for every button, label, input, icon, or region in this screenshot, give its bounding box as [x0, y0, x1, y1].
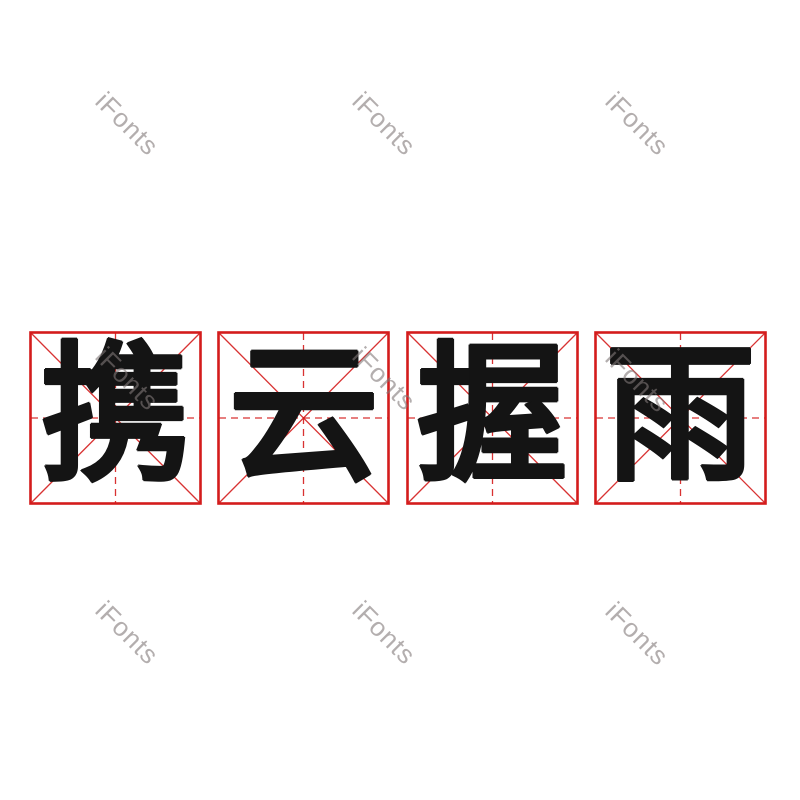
mizige-box-4: 雨	[594, 331, 767, 505]
mizige-box-1: 携	[29, 331, 202, 505]
ifonts-watermark: iFonts	[346, 595, 422, 671]
ifonts-watermark: iFonts	[599, 86, 675, 162]
mizige-box-3: 握	[406, 331, 579, 505]
preview-character-3: 握	[417, 341, 567, 491]
preview-character-4: 雨	[605, 341, 755, 491]
ifonts-watermark: iFonts	[89, 595, 165, 671]
font-preview-canvas: 携 云 握	[0, 0, 800, 800]
ifonts-watermark: iFonts	[89, 86, 165, 162]
mizige-box-2: 云	[217, 331, 390, 505]
preview-character-2: 云	[229, 341, 379, 491]
preview-character-1: 携	[40, 341, 190, 491]
character-boxes-row: 携 云 握	[29, 331, 767, 505]
ifonts-watermark: iFonts	[346, 86, 422, 162]
ifonts-watermark: iFonts	[599, 596, 675, 672]
